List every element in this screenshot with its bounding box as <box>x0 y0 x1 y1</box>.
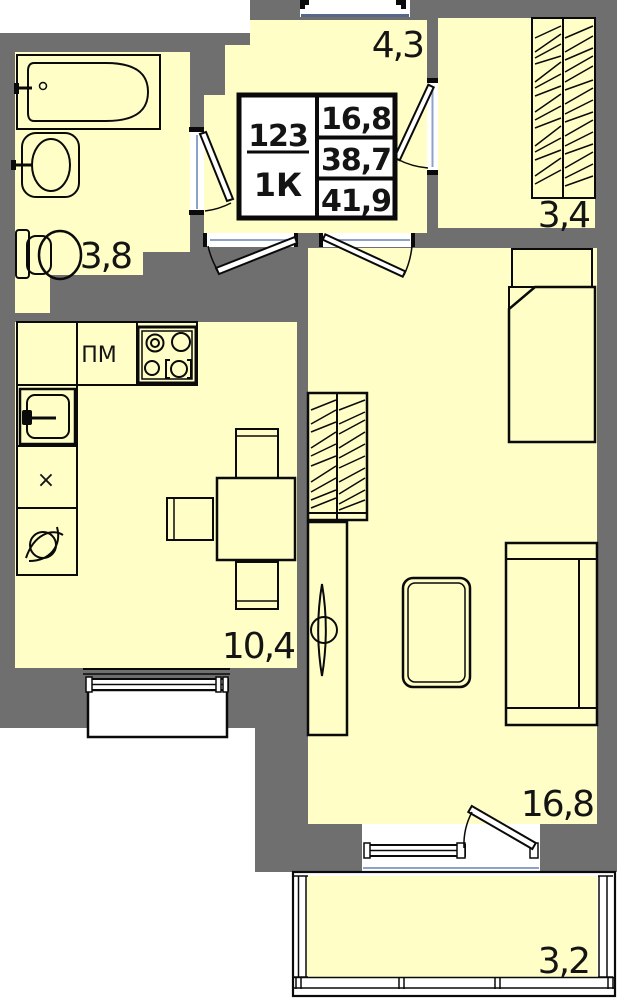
hallway-area-label: 4,3 <box>372 25 423 66</box>
entry-door <box>300 0 410 17</box>
washbasin-tap-icon <box>11 160 16 170</box>
window-post <box>223 677 228 692</box>
apartment-type: 1К <box>254 166 302 204</box>
stamp-apartment-area: 38,7 <box>321 143 391 178</box>
storage-area-label: 3,4 <box>538 195 589 236</box>
window-outer-sill <box>88 690 227 737</box>
vent-symbol: × <box>37 468 55 493</box>
balcony-window-post <box>364 843 370 858</box>
bathroom-area-label: 3,8 <box>80 236 131 277</box>
apartment-stamp: 123 1К 16,8 38,7 41,9 <box>239 95 395 219</box>
bathtub-tap-icon <box>14 83 19 94</box>
living-area-label: 16,8 <box>521 784 593 825</box>
dishwasher-label: ПМ <box>81 343 117 368</box>
bathroom-door-jamb <box>189 210 204 215</box>
floor-plan: ПМ × <box>0 0 617 1000</box>
floor-plan-svg: ПМ × <box>0 0 617 1000</box>
window-post <box>216 677 221 692</box>
storage-door-jamb <box>427 170 438 175</box>
bathroom-door-jamb <box>189 127 204 132</box>
stamp-living-area: 16,8 <box>321 102 391 137</box>
room-living-floor <box>308 248 597 824</box>
window-post <box>86 677 92 692</box>
storage-door-jamb <box>427 78 438 83</box>
living-door-jamb <box>411 233 415 247</box>
balcony-area-label: 3,2 <box>538 941 589 982</box>
kitchen-tap-icon <box>22 410 32 425</box>
stamp-total-area: 41,9 <box>321 184 391 219</box>
kitchen-area-label: 10,4 <box>222 626 294 667</box>
kitchen-window <box>83 669 230 737</box>
apartment-number: 123 <box>248 119 308 154</box>
kitchen-door-jamb <box>203 233 207 247</box>
